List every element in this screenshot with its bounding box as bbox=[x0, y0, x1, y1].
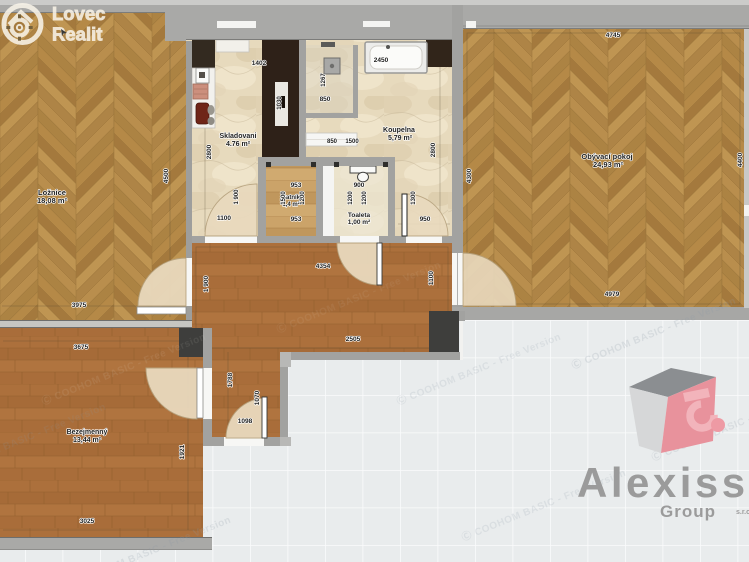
svg-text:1267: 1267 bbox=[321, 73, 327, 87]
svg-text:1030: 1030 bbox=[277, 96, 283, 110]
svg-text:1402: 1402 bbox=[252, 60, 267, 67]
svg-text:Lovec: Lovec bbox=[52, 3, 105, 24]
svg-text:953: 953 bbox=[291, 216, 302, 223]
svg-text:Skladovani: Skladovani bbox=[220, 133, 257, 140]
svg-text:Koupelna: Koupelna bbox=[383, 127, 415, 134]
svg-text:3025: 3025 bbox=[80, 518, 95, 525]
svg-text:1098: 1098 bbox=[238, 418, 253, 425]
svg-text:3675: 3675 bbox=[74, 344, 89, 351]
svg-text:1200: 1200 bbox=[300, 191, 306, 205]
svg-text:4400: 4400 bbox=[737, 152, 744, 167]
svg-text:850: 850 bbox=[320, 96, 331, 103]
svg-text:18,08 m²: 18,08 m² bbox=[37, 196, 68, 205]
svg-text:2800: 2800 bbox=[206, 144, 213, 159]
svg-text:1070: 1070 bbox=[254, 390, 261, 405]
svg-text:900: 900 bbox=[354, 182, 365, 189]
svg-text:Bezejmenný: Bezejmenný bbox=[67, 429, 108, 436]
svg-text:1100: 1100 bbox=[217, 215, 231, 222]
svg-text:Alexiss: Alexiss bbox=[577, 459, 749, 506]
svg-text:Realit: Realit bbox=[52, 24, 102, 45]
svg-text:1921: 1921 bbox=[179, 444, 186, 459]
svg-text:5,79 m²: 5,79 m² bbox=[388, 135, 413, 142]
svg-text:4300: 4300 bbox=[466, 168, 473, 183]
svg-text:3975: 3975 bbox=[72, 302, 87, 309]
svg-text:1500: 1500 bbox=[345, 139, 359, 145]
svg-text:4500: 4500 bbox=[163, 168, 170, 183]
svg-text:1788: 1788 bbox=[227, 372, 234, 387]
svg-text:1300: 1300 bbox=[411, 191, 417, 205]
svg-text:4979: 4979 bbox=[605, 291, 620, 298]
svg-text:2800: 2800 bbox=[430, 142, 437, 157]
svg-text:953: 953 bbox=[291, 182, 302, 189]
svg-text:850: 850 bbox=[327, 139, 338, 145]
svg-text:2450: 2450 bbox=[374, 57, 389, 64]
svg-text:1500: 1500 bbox=[281, 191, 287, 205]
svg-text:Group: Group bbox=[660, 502, 716, 521]
svg-text:1200: 1200 bbox=[348, 191, 354, 205]
svg-text:Toaleta: Toaleta bbox=[348, 212, 371, 219]
svg-text:4.76 m²: 4.76 m² bbox=[226, 141, 251, 148]
svg-text:13,44 m²: 13,44 m² bbox=[73, 437, 102, 444]
svg-text:950: 950 bbox=[420, 216, 431, 223]
svg-text:24,93 m²: 24,93 m² bbox=[593, 160, 624, 169]
svg-text:1200: 1200 bbox=[362, 191, 368, 205]
svg-text:4354: 4354 bbox=[316, 263, 331, 270]
svg-text:1 900: 1 900 bbox=[203, 275, 210, 292]
svg-text:1 900: 1 900 bbox=[234, 189, 240, 205]
svg-text:1,00 m²: 1,00 m² bbox=[348, 219, 371, 226]
svg-text:4745: 4745 bbox=[606, 32, 621, 39]
svg-text:s.r.o.: s.r.o. bbox=[736, 509, 749, 516]
svg-text:2505: 2505 bbox=[346, 336, 361, 343]
